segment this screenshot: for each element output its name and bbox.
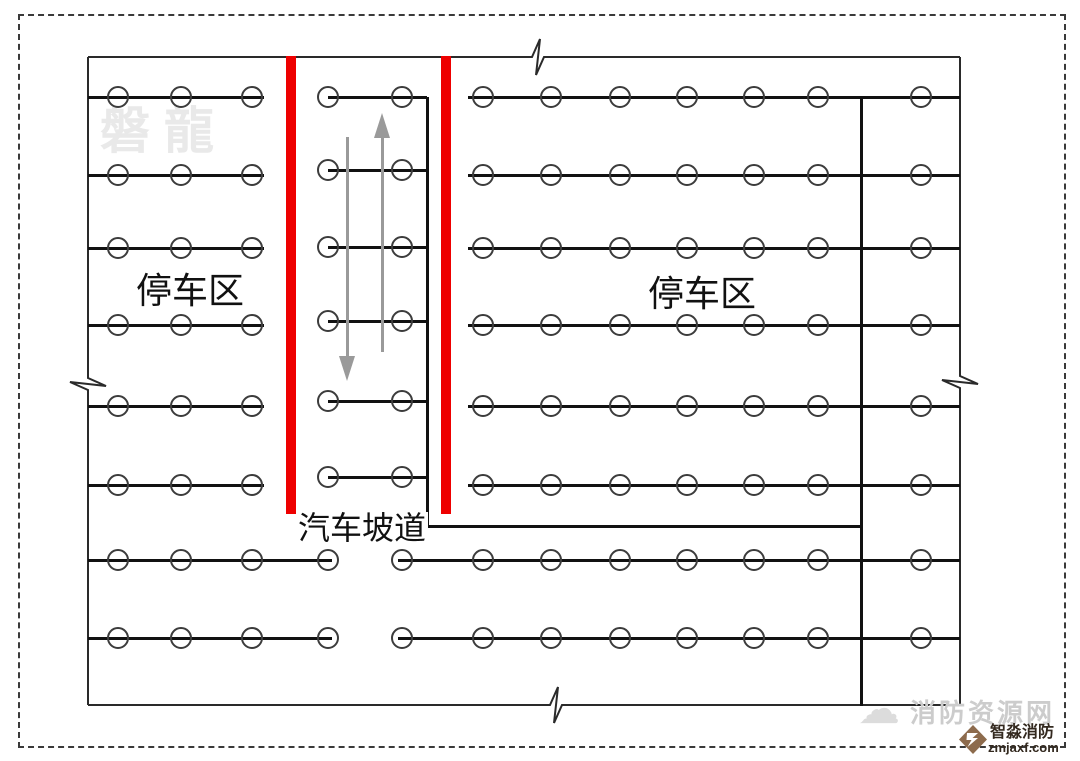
- sprinkler-head-ramp: [317, 466, 339, 488]
- sprinkler-head-right-parking: [910, 474, 932, 496]
- sprinkler-head-right-parking: [807, 314, 829, 336]
- sprinkler-head-bottom-right: [391, 549, 413, 571]
- sprinkler-head-right-parking: [676, 314, 698, 336]
- ramp-arrow-up-shaft: [381, 138, 384, 352]
- sprinkler-head-right-parking: [540, 237, 562, 259]
- diagram-layer: [0, 0, 1080, 761]
- sprinkler-head-right-parking: [676, 395, 698, 417]
- sprinkler-head-left-parking: [170, 164, 192, 186]
- top-wall: [88, 56, 524, 58]
- sprinkler-head-left-parking: [241, 395, 263, 417]
- sprinkler-head-right-parking: [609, 237, 631, 259]
- sprinkler-head-ramp: [317, 86, 339, 108]
- sprinkler-head-bottom-right: [676, 549, 698, 571]
- sprinkler-head-bottom-left: [107, 549, 129, 571]
- ramp-wall-right: [441, 56, 451, 514]
- sprinkler-head-bottom-right: [910, 549, 932, 571]
- cloud-logo-icon: ☁: [858, 688, 900, 730]
- sprinkler-head-right-parking: [676, 86, 698, 108]
- sprinkler-head-ramp: [391, 390, 413, 412]
- sprinkler-head-bottom-right: [807, 549, 829, 571]
- sprinkler-head-right-parking: [540, 474, 562, 496]
- sprinkler-head-right-parking: [472, 474, 494, 496]
- sprinkler-head-right-parking: [609, 395, 631, 417]
- sprinkler-head-bottom-right: [743, 627, 765, 649]
- ramp-arrow-down-head: [339, 356, 355, 381]
- sprinkler-head-right-parking: [540, 314, 562, 336]
- left-parking-area-label: 停车区: [136, 273, 244, 309]
- sprinkler-head-right-parking: [540, 86, 562, 108]
- sprinkler-head-ramp: [391, 86, 413, 108]
- sprinkler-head-right-parking: [609, 474, 631, 496]
- bottom-wall: [570, 704, 960, 706]
- sprinkler-head-right-parking: [540, 164, 562, 186]
- right-wall: [959, 57, 961, 368]
- sprinkler-head-bottom-left: [241, 627, 263, 649]
- sprinkler-head-bottom-left: [107, 627, 129, 649]
- sprinkler-head-bottom-left: [241, 549, 263, 571]
- sprinkler-head-left-parking: [107, 474, 129, 496]
- brand-domain-text: zmjaxf.com: [988, 741, 1059, 754]
- left-wall: [87, 398, 89, 705]
- sprinkler-head-right-parking: [743, 474, 765, 496]
- sprinkler-head-bottom-right: [676, 627, 698, 649]
- ramp-wall-left: [286, 56, 296, 514]
- right-wall: [959, 396, 961, 705]
- sprinkler-head-ramp: [317, 159, 339, 181]
- sprinkler-head-left-parking: [170, 395, 192, 417]
- brand-name-text: 智淼消防: [990, 725, 1054, 741]
- sprinkler-head-right-parking: [676, 237, 698, 259]
- site-watermark-text: 消防资源网: [910, 700, 1055, 726]
- break-line-symbol: [524, 37, 552, 77]
- sprinkler-head-right-parking: [609, 86, 631, 108]
- sprinkler-head-bottom-right: [609, 627, 631, 649]
- right-main-pipe: [860, 97, 863, 706]
- sprinkler-head-right-parking: [472, 86, 494, 108]
- sprinkler-head-right-parking: [910, 395, 932, 417]
- sprinkler-head-right-parking: [676, 474, 698, 496]
- sprinkler-head-right-parking: [676, 164, 698, 186]
- sprinkler-head-left-parking: [107, 314, 129, 336]
- top-wall: [552, 56, 960, 58]
- sprinkler-head-left-parking: [241, 86, 263, 108]
- sprinkler-head-left-parking: [241, 237, 263, 259]
- sprinkler-head-left-parking: [107, 164, 129, 186]
- sprinkler-head-right-parking: [472, 395, 494, 417]
- sprinkler-head-right-parking: [743, 86, 765, 108]
- ramp-connector-pipe: [427, 525, 863, 528]
- sprinkler-head-left-parking: [107, 86, 129, 108]
- sprinkler-head-bottom-right: [743, 549, 765, 571]
- sprinkler-head-right-parking: [743, 164, 765, 186]
- sprinkler-head-left-parking: [170, 474, 192, 496]
- sprinkler-head-bottom-right: [609, 549, 631, 571]
- ramp-arrow-up-head: [374, 113, 390, 138]
- sprinkler-head-left-parking: [241, 314, 263, 336]
- sprinkler-head-ramp: [391, 159, 413, 181]
- sprinkler-head-left-parking: [107, 237, 129, 259]
- sprinkler-head-ramp: [317, 310, 339, 332]
- sprinkler-head-left-parking: [241, 474, 263, 496]
- ramp-arrow-down-shaft: [346, 137, 349, 356]
- sprinkler-head-left-parking: [170, 237, 192, 259]
- sprinkler-head-ramp: [391, 466, 413, 488]
- sprinkler-head-right-parking: [472, 164, 494, 186]
- ramp-main-pipe: [426, 97, 429, 528]
- sprinkler-head-right-parking: [807, 395, 829, 417]
- sprinkler-head-right-parking: [743, 237, 765, 259]
- break-line-symbol: [542, 685, 570, 725]
- sprinkler-head-left-parking: [107, 395, 129, 417]
- sprinkler-head-right-parking: [807, 164, 829, 186]
- sprinkler-head-bottom-left: [317, 549, 339, 571]
- sprinkler-head-ramp: [391, 236, 413, 258]
- sprinkler-head-bottom-right: [910, 627, 932, 649]
- sprinkler-head-left-parking: [170, 314, 192, 336]
- sprinkler-head-bottom-right: [540, 549, 562, 571]
- sprinkler-head-bottom-right: [472, 549, 494, 571]
- diamond-z-logo-icon: [958, 724, 988, 760]
- sprinkler-head-right-parking: [910, 164, 932, 186]
- sprinkler-head-ramp: [317, 236, 339, 258]
- sprinkler-head-right-parking: [910, 314, 932, 336]
- parking-garage-sprinkler-plan: 磐龍 停车区 停车区 汽车坡道 ☁ 消防资源网 智淼消防 zmjaxf.com: [0, 0, 1080, 761]
- sprinkler-head-right-parking: [807, 237, 829, 259]
- sprinkler-head-ramp: [317, 390, 339, 412]
- break-line-symbol: [68, 370, 108, 398]
- sprinkler-head-bottom-left: [317, 627, 339, 649]
- sprinkler-head-left-parking: [241, 164, 263, 186]
- sprinkler-head-right-parking: [743, 395, 765, 417]
- sprinkler-head-right-parking: [910, 237, 932, 259]
- sprinkler-head-bottom-right: [391, 627, 413, 649]
- sprinkler-head-right-parking: [807, 86, 829, 108]
- sprinkler-head-right-parking: [472, 314, 494, 336]
- sprinkler-head-bottom-right: [807, 627, 829, 649]
- sprinkler-head-right-parking: [609, 314, 631, 336]
- sprinkler-head-right-parking: [743, 314, 765, 336]
- bottom-wall: [88, 704, 542, 706]
- sprinkler-head-right-parking: [910, 86, 932, 108]
- right-parking-area-label: 停车区: [648, 276, 756, 312]
- sprinkler-head-bottom-left: [170, 627, 192, 649]
- sprinkler-head-right-parking: [807, 474, 829, 496]
- car-ramp-label: 汽车坡道: [296, 512, 428, 544]
- sprinkler-head-right-parking: [540, 395, 562, 417]
- sprinkler-head-bottom-right: [472, 627, 494, 649]
- sprinkler-head-right-parking: [609, 164, 631, 186]
- sprinkler-head-ramp: [391, 310, 413, 332]
- sprinkler-head-bottom-right: [540, 627, 562, 649]
- sprinkler-head-right-parking: [472, 237, 494, 259]
- sprinkler-head-left-parking: [170, 86, 192, 108]
- break-line-symbol: [940, 368, 980, 396]
- sprinkler-head-bottom-left: [170, 549, 192, 571]
